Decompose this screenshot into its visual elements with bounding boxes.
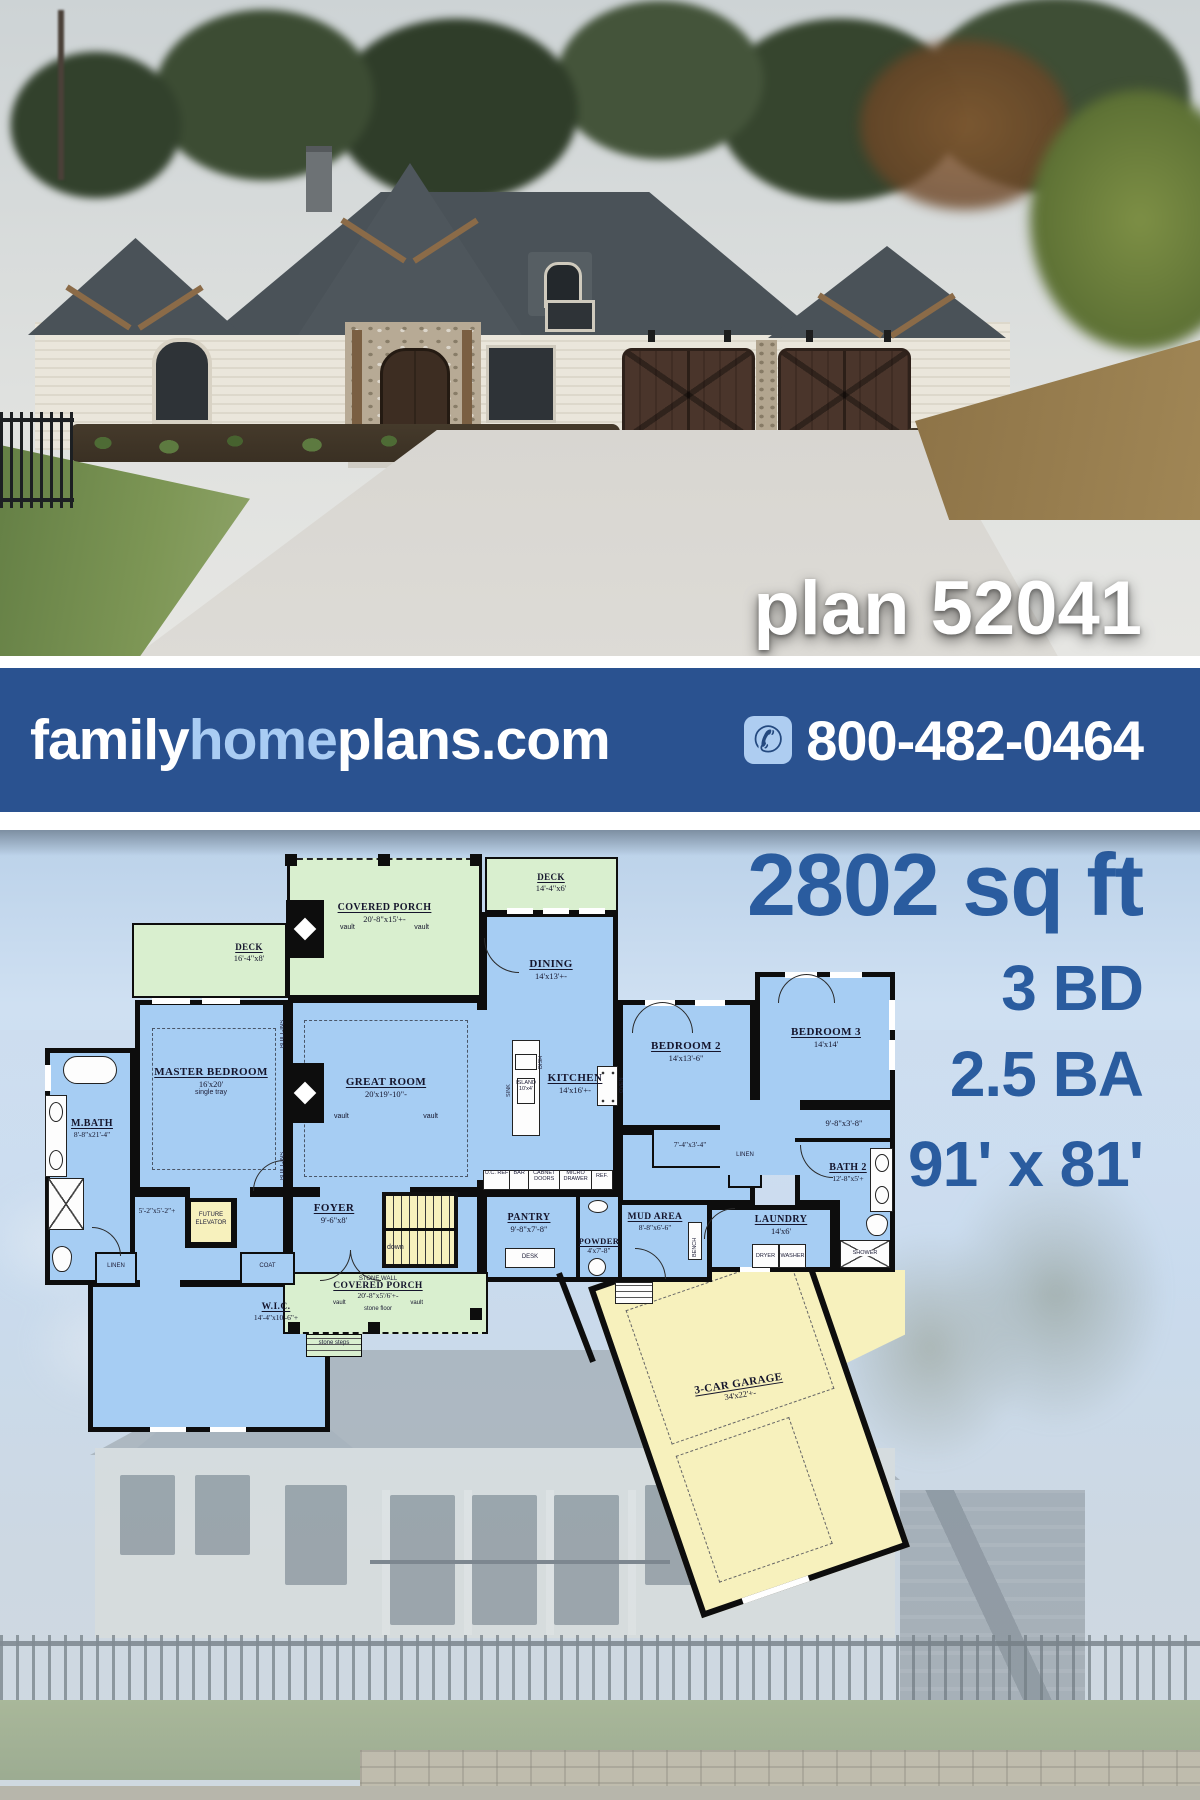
dryer-label: DRYER [753,1253,778,1259]
bath2-name: BATH 2 [812,1162,884,1174]
vault-label: vault [410,1300,423,1306]
bedroom3-dim: 14'x14' [786,1039,866,1049]
mbath-name: M.BATH [58,1118,126,1130]
window [543,908,569,914]
powder-toilet [588,1258,606,1276]
laundry-name: LAUNDRY [746,1214,816,1226]
label-mbath: M.BATH 8'-8"x21'-4" [58,1118,126,1139]
kitchen-dim: 14'x16'+- [537,1085,613,1095]
stairs-divider [384,1228,456,1231]
powder-name: POWDER [576,1236,622,1246]
window [152,998,190,1004]
laundry-dim: 14'x6' [746,1226,816,1236]
phone-contact[interactable]: ✆ 800-482-0464 [744,708,1143,773]
window [210,1427,246,1432]
label-sink: SINK [506,1078,513,1104]
brand-family: family [30,708,189,772]
floor-plan: 3-CAR GARAGE 34'x22'+- [40,850,920,1680]
bench-label: BENCH [692,1227,698,1257]
window [202,998,240,1004]
window [889,1000,895,1030]
phone-icon: ✆ [744,716,792,764]
great-dim: 20'x19'-10"- [326,1089,446,1099]
stat-area: 2802 sq ft [747,838,1143,932]
appliance-ref: REF. [592,1171,612,1189]
window [889,1040,895,1070]
pantry-dim: 9'-8"x7'-8" [489,1224,569,1234]
label-linen-left: LINEN [95,1263,137,1270]
brand-home: home [189,708,337,772]
vault-label: vault [340,924,355,932]
master-note: single tray [151,1089,271,1097]
wall-bath2-hall [795,1138,895,1142]
powder-sink [588,1200,608,1213]
built-ins-label-lower: BUILT-INS [280,1140,290,1192]
timber-truss-left [70,252,200,332]
island-dim: 10'x4' [511,1086,541,1092]
built-ins-label-upper: BUILT-INS [280,1008,290,1060]
arched-window [152,338,212,424]
label-great-room: GREAT ROOM 20'x19'-10"- vaultvault [326,1076,446,1122]
plan-number-label: plan 52041 [753,565,1142,652]
label-laundry: LAUNDRY 14'x6' [746,1214,816,1236]
opening-hall-linen [720,1100,800,1175]
label-bedroom2: BEDROOM 2 14'x13'-6" [646,1040,726,1063]
garage-door-opening [742,1575,810,1603]
dryer-box: DRYER [752,1244,779,1268]
mud-dim: 8'-8"x6'-6" [622,1223,688,1232]
appliance-micro-drawer: MICRO DRAWER [560,1171,591,1189]
great-name: GREAT ROOM [326,1076,446,1089]
coach-light-1 [648,330,655,342]
brand-wordmark[interactable]: familyhomeplans.com [30,707,610,773]
label-mud-area: MUD AREA 8'-8"x6'-6" [622,1212,688,1232]
porch-pillar [368,1322,380,1334]
coach-light-3 [806,330,813,342]
pine-trunk [58,10,64,180]
label-hall-bed: 7'-4"x3'-4" [654,1140,726,1149]
window [579,908,605,914]
appliance-ucref: U.C. REF [484,1171,510,1189]
label-island: ISLAND 10'x4' [511,1080,541,1092]
label-down: down [384,1244,417,1252]
appliance-bar: BAR [510,1171,529,1189]
pantry-name: PANTRY [489,1212,569,1224]
label-deck-right: DECK 14'-4"x6' [511,872,591,893]
window [695,1000,725,1006]
foyer-dim: 9'-6"x8' [294,1215,374,1225]
brand-plans: plans.com [337,708,610,772]
label-bedroom3: BEDROOM 3 14'x14' [786,1026,866,1049]
label-future-elevator: FUTURE ELEVATOR [187,1212,235,1227]
flyer-page: plan 52041 familyhomeplans.com ✆ 800-482… [0,0,1200,1800]
bedroom2-name: BEDROOM 2 [646,1040,726,1053]
porch-bottom-dim: 20'-8"x5'/6'+- [293,1292,463,1300]
mbath-sink-2 [49,1150,63,1170]
mud-garage-steps [615,1282,653,1304]
label-master-bedroom: MASTER BEDROOM 16'x20' single tray [151,1066,271,1098]
bath2-sink-2 [875,1186,889,1204]
foyer-name: FOYER [294,1202,374,1215]
phone-number: 800-482-0464 [806,708,1143,773]
opening-master-hall [190,1186,250,1198]
bedroom2-dim: 14'x13'-6" [646,1053,726,1063]
master-name: MASTER BEDROOM [151,1066,271,1079]
label-covered-porch-top: COVERED PORCH 20'-8"x15'+- vaultvault [332,902,437,933]
label-linen-right: LINEN [728,1152,762,1159]
vault-label: vault [333,1300,346,1306]
window [830,972,862,978]
deck-right-dim: 14'-4"x6' [511,883,591,893]
fireplace-great-room [286,1063,324,1123]
mud-bench: BENCH [688,1222,702,1260]
house-photo: plan 52041 [0,0,1200,656]
opening-hall-wic [140,1278,180,1288]
pantry-desk: DESK [505,1248,555,1268]
window-right-of-entry [486,345,556,423]
coach-light-2 [724,330,731,342]
label-foyer: FOYER 9'-6"x8' [294,1202,374,1225]
label-kitchen: KITCHEN 14'x16'+- [537,1072,613,1095]
vault-label: vault [423,1113,438,1121]
porch-pillar [288,1322,300,1334]
porch-top-name: COVERED PORCH [332,902,437,914]
bg-bottom-strip [0,1786,1200,1800]
window-pair-small [545,300,595,332]
label-pantry: PANTRY 9'-8"x7'-8" [489,1212,569,1234]
kitchen-name: KITCHEN [537,1072,613,1085]
coach-light-4 [884,330,891,342]
label-coat: COAT [240,1263,295,1270]
brand-banner: familyhomeplans.com ✆ 800-482-0464 [0,668,1200,812]
porch-top-dim: 20'-8"x15'+- [332,914,437,924]
label-bath2: BATH 2 12'-8"x5'+ [812,1162,884,1183]
bedroom3-name: BEDROOM 3 [786,1026,866,1039]
washer-box: WASHER [779,1244,806,1268]
label-hall-master: 5'-2"x5'-2"+ [127,1206,187,1215]
master-dim: 16'x20' [151,1079,271,1089]
stat-beds: 3 BD [1001,954,1143,1022]
mbath-dim: 8'-8"x21'-4" [58,1130,126,1139]
master-tray-outline [152,1028,276,1170]
master-tub [63,1056,117,1084]
label-dining: DINING 14'x13'+- [511,958,591,981]
shower-label: SHOWER [841,1250,889,1256]
dining-dim: 14'x13'+- [511,971,591,981]
timber-truss-right [822,262,952,338]
window [45,1065,51,1091]
deck-left-dim: 16'-4"x8' [174,953,324,963]
label-covered-porch-bottom: STONE WALL COVERED PORCH 20'-8"x5'/6'+- … [293,1276,463,1313]
vault-label: vault [334,1113,349,1121]
washer-label: WASHER [780,1253,805,1259]
vault-label: vault [414,924,429,932]
label-hall-right: 9'-8"x3'-8" [804,1118,884,1128]
garage-door-right [778,348,911,442]
label-oven: OVEN [619,1072,626,1098]
powder-dim: 4'x7'-8" [576,1246,622,1255]
label-dish: DISH [538,1054,545,1070]
opening-great-kitchen [472,1010,492,1180]
bath2-shower: SHOWER [840,1240,890,1268]
island-dishwasher [515,1054,537,1070]
metal-fence [0,412,74,508]
stone-floor-label: stone floor [293,1306,463,1312]
label-deck-left: DECK 16'-4"x8' [174,942,324,963]
mud-name: MUD AREA [622,1212,688,1223]
wic-dim: 14'-4"x10'-6"+ [236,1313,316,1322]
appliance-cabinet-doors: CABNET DOORS [529,1171,560,1189]
timber-truss-center [345,185,475,265]
dining-name: DINING [511,958,591,971]
porch-pillar [470,1308,482,1320]
window [507,908,533,914]
bath2-dim: 12'-8"x5'+ [812,1174,884,1183]
garage-bay-1 [626,1254,835,1444]
label-powder: POWDER 4'x7'-8" [576,1236,622,1255]
garage-door-left [622,348,755,442]
label-stone-steps: stone steps [306,1340,362,1347]
garage-bay-2 [676,1417,833,1583]
deck-right-name: DECK [511,872,591,883]
chimney [306,146,332,212]
deck-left-name: DECK [174,942,324,953]
stone-pillar [756,340,777,442]
desk-label: DESK [506,1254,554,1260]
window [150,1427,186,1432]
stat-size: 91' x 81' [908,1130,1143,1198]
stat-baths: 2.5 BA [950,1040,1143,1108]
kitchen-counter-row: U.C. REF BAR CABNET DOORS MICRO DRAWER R… [483,1170,613,1190]
mbath-shower [48,1178,84,1230]
